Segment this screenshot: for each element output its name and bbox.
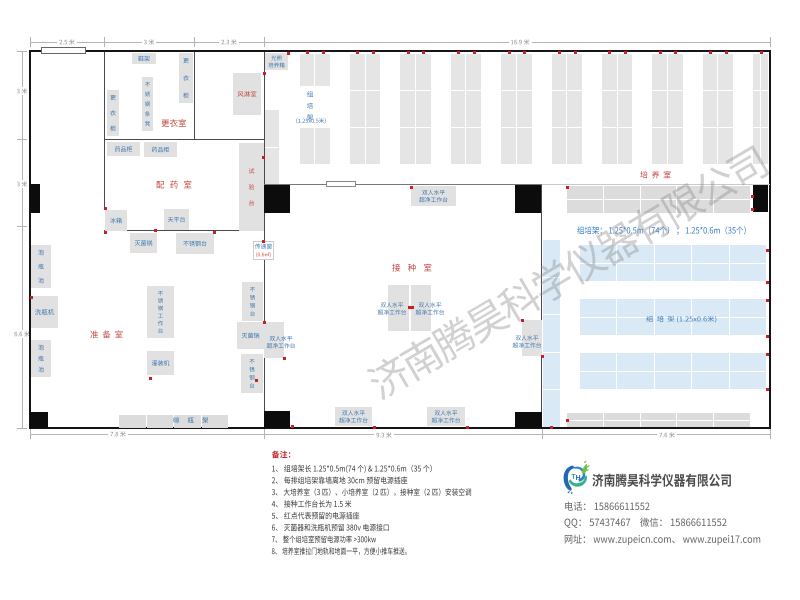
svg-text:H: H	[576, 475, 581, 482]
